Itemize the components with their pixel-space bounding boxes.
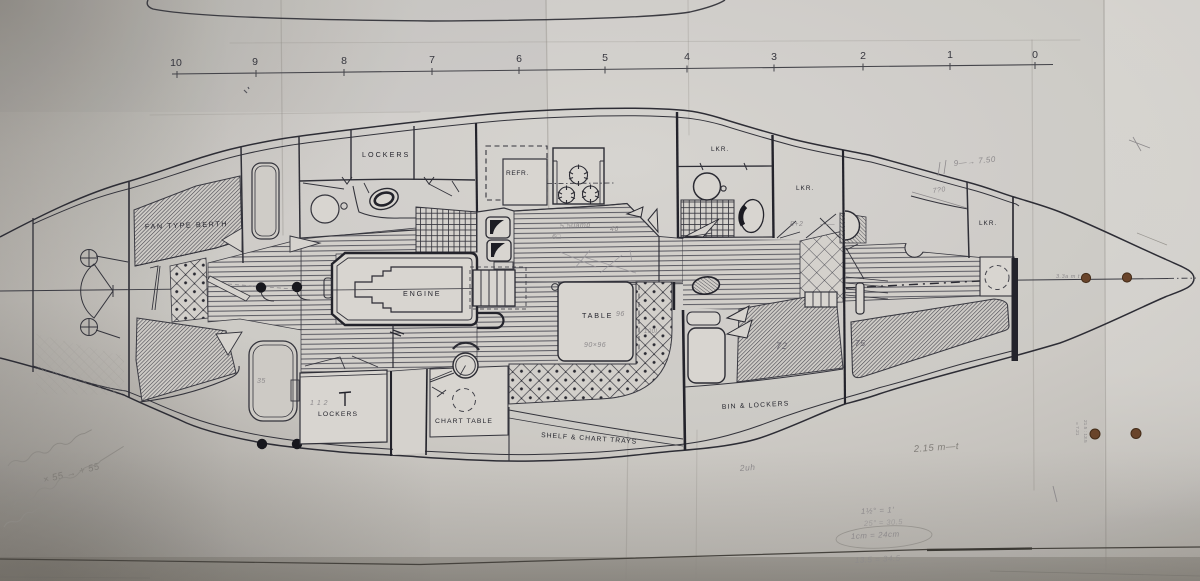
svg-text:2uh: 2uh: [738, 462, 755, 473]
svg-text:5,50amb: 5,50amb: [560, 222, 591, 230]
svg-text:6: 6: [516, 53, 522, 65]
svg-text:LOCKERS: LOCKERS: [362, 150, 410, 159]
svg-text:8: 8: [341, 55, 347, 67]
svg-text:LKR.: LKR.: [979, 220, 997, 227]
svg-text:REFR.: REFR.: [506, 170, 529, 177]
svg-text:LKR.: LKR.: [796, 185, 814, 192]
svg-text:4: 4: [684, 51, 690, 63]
svg-text:3.3a m t: 3.3a m t: [1056, 274, 1080, 280]
svg-text:90×96: 90×96: [584, 342, 606, 349]
svg-text:——: ——: [819, 221, 836, 228]
svg-text:21.5 : 13.5: 21.5 : 13.5: [1082, 420, 1088, 443]
svg-text:72: 72: [776, 341, 788, 352]
svg-text:46: 46: [610, 226, 619, 233]
svg-text:1½° = 1′: 1½° = 1′: [861, 505, 895, 516]
svg-text:CHART TABLE: CHART TABLE: [435, 418, 493, 425]
svg-text:1 1 2: 1 1 2: [310, 400, 328, 407]
svg-text:LKR.: LKR.: [711, 146, 729, 153]
svg-text:5: 5: [602, 52, 608, 64]
svg-text:ENGINE: ENGINE: [403, 289, 441, 298]
svg-text:96: 96: [616, 311, 625, 318]
svg-text:8+2: 8+2: [790, 221, 803, 228]
svg-text:10: 10: [170, 57, 182, 69]
svg-text:2: 2: [860, 50, 866, 62]
svg-text:35: 35: [257, 378, 266, 385]
svg-text:6□: 6□: [552, 234, 561, 241]
svg-text:7: 7: [429, 54, 435, 66]
svg-text:LOCKERS: LOCKERS: [318, 411, 358, 418]
svg-text:9: 9: [252, 56, 258, 68]
svg-text:= 7.21: = 7.21: [1074, 422, 1080, 436]
svg-text:3: 3: [771, 51, 777, 63]
svg-text:100l: 100l: [644, 329, 658, 335]
svg-text:0: 0: [1032, 49, 1038, 61]
svg-text:TABLE: TABLE: [582, 311, 613, 320]
svg-text:75: 75: [855, 338, 865, 348]
svg-text:1: 1: [947, 49, 953, 61]
